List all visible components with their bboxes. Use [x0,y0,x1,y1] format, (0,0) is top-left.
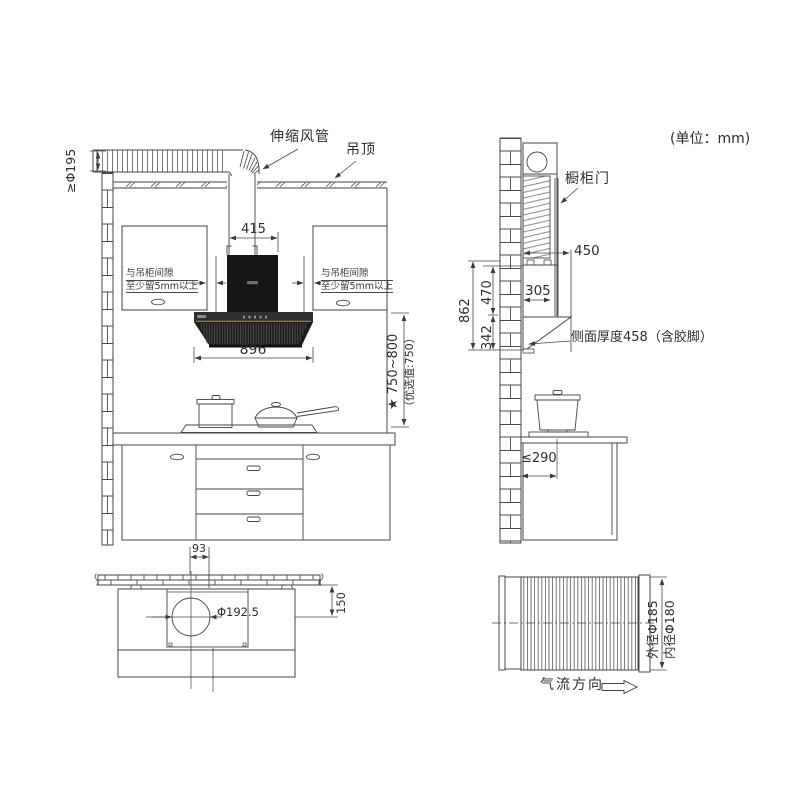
airflow-arrow [602,681,637,694]
hood-side [523,265,571,353]
gap-note-left-line1: 与吊柜间隙 [126,268,198,281]
dim-750-800-text: ★ 750~800 [387,334,401,410]
gap-note-right-line2: 至少留5mm以上 [321,281,393,294]
vertical-duct [227,174,258,255]
dim-862-text: 862 [459,298,473,323]
gap-note-left: 与吊柜间隙 至少留5mm以上 [126,268,198,293]
dim-150 [295,585,338,617]
dim-93-text: 93 [185,543,213,555]
hood-plan [118,571,295,692]
pot-side [529,391,588,438]
wall-front [102,173,113,545]
dim-150-text: 150 [335,592,348,614]
dim-342-text: 342 [481,325,495,350]
gap-note-left-line2: 至少留5mm以上 [126,281,198,294]
thickness-note: 侧面厚度458（含胶脚） [571,331,713,345]
label-cabinet-door: 橱柜门 [565,172,610,187]
dim-470-text: 470 [481,280,495,305]
dim-305-text: 305 [525,284,551,299]
top-view [95,547,338,692]
label-ceiling: 吊顶 [346,143,376,158]
dim-896-text: 896 [238,343,268,358]
ceiling [113,182,387,188]
front-leaders [263,149,356,178]
dim-hole-dia-text: Φ192.5 [217,606,259,619]
duct-outer-dia-text: 外径Φ185 [646,600,660,659]
duct-section [492,575,667,694]
airflow-label: 气流方向 [540,678,604,693]
duct-inner-dia-text: 内径Φ180 [663,600,677,659]
gap-note-right-line1: 与吊柜间隙 [321,268,393,281]
label-telescopic-duct: 伸缩风管 [270,130,330,145]
dim-750-800-pref-text: （优选值:750） [404,332,416,412]
telescopic-duct [93,150,259,176]
dim-415-text: 415 [239,223,268,237]
base-cabinet [113,433,395,540]
cooktop [181,396,339,433]
unit-note: (单位：mm) [670,132,750,147]
wall-side [500,138,521,543]
installation-diagram: (单位：mm) 伸缩风管 吊顶 ≥Φ195 415 与吊柜间隙 至少留5mm以上… [0,0,800,800]
range-hood [194,255,313,348]
gap-note-right: 与吊柜间隙 至少留5mm以上 [321,268,393,293]
leader-cabinet-door [561,188,578,203]
dim-450-text: 450 [574,244,600,259]
dim-290-text: ≤290 [521,452,557,466]
dim-dia195-text: ≥Φ195 [64,149,78,193]
